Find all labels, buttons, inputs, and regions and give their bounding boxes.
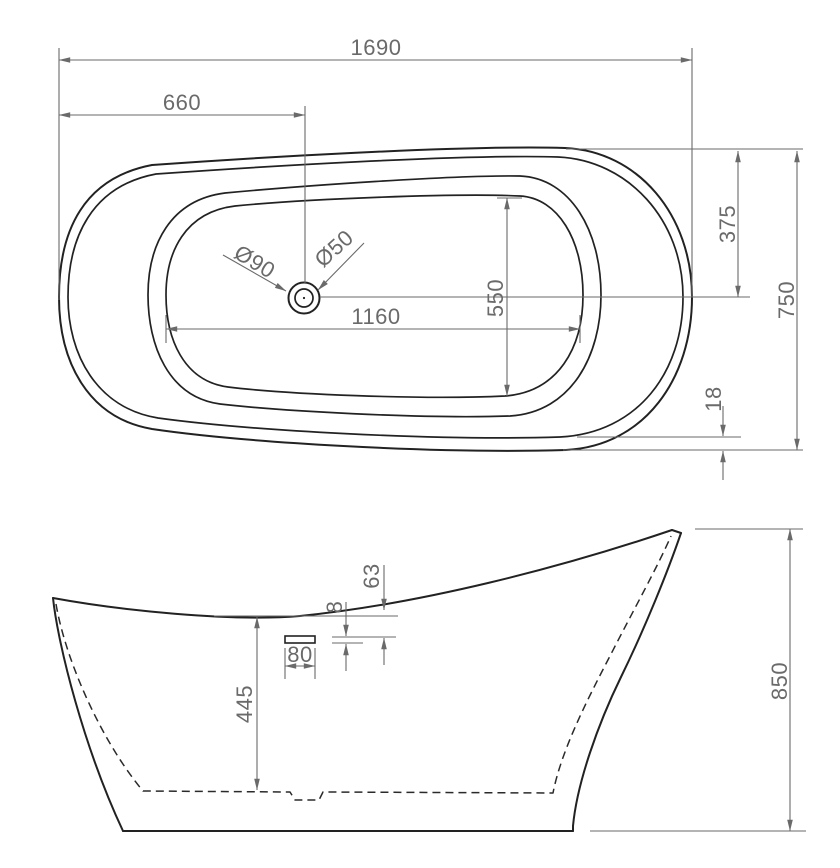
top-view-outer-rim-outline <box>59 148 692 451</box>
side-view: 445 80 8 63 850 <box>53 529 806 831</box>
dim-centerline-from-top: 375 <box>715 151 740 297</box>
dim-inner-width-label: 550 <box>483 279 508 317</box>
dim-rim-edge-gap: 18 <box>701 386 726 480</box>
dim-inner-length-label: 1160 <box>351 304 400 329</box>
dim-inner-length: 1160 <box>166 304 580 329</box>
side-view-right-tip <box>672 530 681 533</box>
dim-centerline-from-top-label: 375 <box>715 205 740 243</box>
dim-overflow-slot-length: 80 <box>285 642 315 667</box>
drain-center-dot <box>303 297 305 299</box>
dim-drain-offset-label: 660 <box>163 90 201 115</box>
dim-overall-width: 750 <box>774 151 799 450</box>
side-view-right-edge <box>573 533 681 831</box>
top-view: 1690 660 375 750 1160 550 <box>59 35 803 480</box>
drawing-canvas: 1690 660 375 750 1160 550 <box>0 0 840 868</box>
dim-overflow-below-rim-label: 63 <box>359 563 384 588</box>
dim-overflow-slot-height-label: 8 <box>322 601 347 614</box>
dim-inner-depth-label: 445 <box>232 685 257 723</box>
top-view-basin-inner-outline <box>166 195 583 397</box>
drain-outer-diameter-label: Ø90 <box>230 240 280 284</box>
dim-overall-length: 1690 <box>59 35 692 60</box>
dim-overall-length-label: 1690 <box>351 35 402 60</box>
side-view-left-edge <box>53 598 123 831</box>
dim-overall-height-label: 850 <box>767 662 792 700</box>
dim-overflow-below-rim: 63 <box>359 563 384 665</box>
top-view-basin-outer-outline <box>148 176 601 417</box>
leader-drain-inner-diameter: Ø50 <box>310 225 364 290</box>
dim-overall-height: 850 <box>767 529 792 831</box>
dim-overflow-slot-length-label: 80 <box>287 642 312 667</box>
bathtub-technical-drawing: 1690 660 375 750 1160 550 <box>0 0 840 868</box>
dim-overall-width-label: 750 <box>774 281 799 319</box>
leader-drain-outer-diameter: Ø90 <box>223 240 286 291</box>
dim-inner-depth: 445 <box>232 617 257 790</box>
dim-overflow-slot-height: 8 <box>322 601 347 671</box>
dim-rim-edge-gap-label: 18 <box>701 386 726 411</box>
dim-inner-width: 550 <box>483 198 508 396</box>
drain-inner-diameter-label: Ø50 <box>310 225 359 272</box>
dim-drain-offset: 660 <box>59 90 305 115</box>
